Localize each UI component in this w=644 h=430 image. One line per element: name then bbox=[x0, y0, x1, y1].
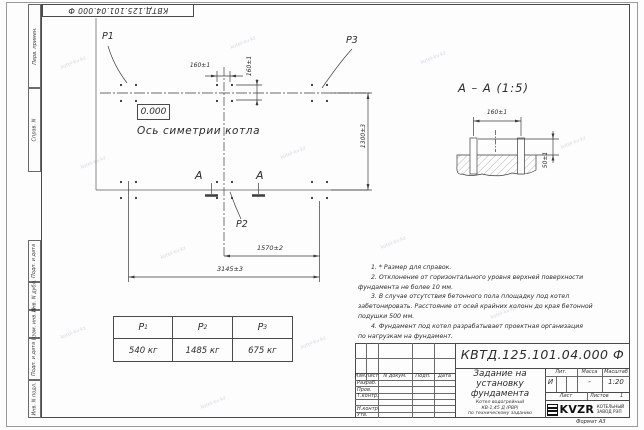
notes-block: 1. * Размер для справок. 2. Отклонение о… bbox=[358, 263, 642, 341]
note-line: подушки 500 мм. bbox=[358, 312, 642, 322]
titleblock-line bbox=[355, 412, 455, 413]
drawing-title-cell: Задание на установку фундамента bbox=[455, 368, 545, 400]
note-line: 2. Отклонение от горизонтального уровня … bbox=[358, 273, 642, 283]
elevation-mark: 0.000 bbox=[137, 104, 170, 120]
dim-160v-plan: 160±1 bbox=[244, 53, 256, 79]
p-sub: 3 bbox=[263, 324, 267, 331]
sheet-format-label: Формат А3 bbox=[576, 420, 606, 425]
lit-label: Лит. bbox=[545, 370, 577, 375]
loads-table-header-row: P1 P2 P3 bbox=[114, 317, 292, 339]
section-letter-right: А bbox=[256, 170, 264, 181]
dimension-arrows bbox=[129, 75, 555, 279]
load-value-p1: 540 кг bbox=[114, 339, 173, 362]
caption-line: ЗАВОД РЭП bbox=[597, 410, 624, 415]
massa-value: - bbox=[577, 379, 602, 386]
loads-table-value-row: 540 кг 1485 кг 675 кг bbox=[114, 339, 292, 362]
dim-50-section: 50±1 bbox=[540, 147, 552, 173]
subtitle-line: по техническому заданию bbox=[455, 411, 545, 417]
loads-header-p2: P2 bbox=[173, 317, 232, 338]
col-izm: Изм. bbox=[355, 374, 366, 379]
col-list: Лист bbox=[366, 374, 378, 379]
titleblock-line bbox=[355, 358, 455, 359]
p-sub: 1 bbox=[144, 324, 148, 331]
note-line: по нагрузкам на фундамент. bbox=[358, 332, 642, 342]
titleblock-line bbox=[355, 399, 455, 400]
note-line: 3. В случае отсутствия бетонного пола пл… bbox=[358, 292, 642, 302]
listov-label: Листов bbox=[590, 394, 609, 399]
drawing-sheet: { "doc": { "stamp_rotated": "КВТД.125.10… bbox=[0, 0, 644, 430]
kvzr-logo-caption: КОТЕЛЬНЫЙ ЗАВОД РЭП bbox=[597, 405, 624, 414]
drawing-title: Задание на установку фундамента bbox=[455, 369, 545, 399]
row-prov: Пров. bbox=[357, 388, 372, 393]
row-nkontr: Н.контр. bbox=[357, 407, 379, 412]
load-point-p2-label: P2 bbox=[236, 220, 248, 230]
col-podp: Подп. bbox=[412, 374, 434, 379]
col-data: Дата bbox=[434, 374, 455, 379]
titleblock-line bbox=[545, 376, 630, 377]
document-number: КВТД.125.101.04.000 Ф bbox=[455, 343, 630, 368]
load-value-p2: 1485 кг bbox=[173, 339, 232, 362]
note-line: забетонировать. Расстояние от осей крайн… bbox=[358, 302, 642, 312]
masshtab-label: Масштаб bbox=[602, 370, 630, 375]
list-label: Лист bbox=[545, 394, 587, 399]
dim-1300: 1300±3 bbox=[358, 118, 370, 154]
loads-header-p1: P1 bbox=[114, 317, 173, 338]
p-sub: 2 bbox=[203, 324, 207, 331]
titleblock-line bbox=[587, 392, 588, 400]
kvzr-logo-text: KVZR bbox=[560, 403, 595, 416]
dim-160h-plan: 160±1 bbox=[184, 63, 216, 69]
titleblock-line bbox=[545, 400, 630, 401]
elevation-value: 0.000 bbox=[141, 108, 167, 117]
dim-160-section: 160±1 bbox=[478, 110, 516, 116]
kvzr-logo-icon bbox=[547, 404, 558, 416]
load-point-p1-label: P1 bbox=[102, 32, 114, 42]
row-utv: Утв. bbox=[357, 413, 368, 418]
note-line: 4. Фундамент под котел разрабатывает про… bbox=[358, 322, 642, 332]
loads-table: P1 P2 P3 540 кг 1485 кг 675 кг bbox=[113, 316, 293, 362]
dim-1570: 1570±2 bbox=[246, 245, 294, 252]
note-line: фундамента не более 10 мм. bbox=[358, 283, 642, 293]
manufacturer-logo: KVZR КОТЕЛЬНЫЙ ЗАВОД РЭП bbox=[547, 402, 629, 417]
section-letter-left: А bbox=[195, 170, 203, 181]
listov-value: 1 bbox=[620, 394, 623, 399]
note-line: 1. * Размер для справок. bbox=[358, 263, 642, 273]
row-razrab: Разраб. bbox=[357, 381, 377, 386]
drawing-subtitle: Котел водогрейный КВ-1,45 Д (РВР) по тех… bbox=[455, 400, 545, 417]
load-value-p3: 675 кг bbox=[233, 339, 292, 362]
titleblock-line bbox=[566, 376, 567, 392]
row-tkontr: Т.контр. bbox=[357, 394, 379, 399]
section-view-title: А – А (1:5) bbox=[458, 83, 529, 95]
boiler-symmetry-axis-label: Ось симетрии котла bbox=[137, 126, 260, 137]
loads-header-p3: P3 bbox=[233, 317, 292, 338]
masshtab-value: 1:20 bbox=[602, 379, 630, 386]
massa-label: Масса bbox=[577, 370, 602, 375]
dim-3145: 3145±3 bbox=[206, 266, 254, 273]
load-point-p3-label: P3 bbox=[346, 36, 358, 46]
col-dokum: N докум. bbox=[378, 374, 412, 379]
lit-value: И bbox=[545, 379, 556, 386]
